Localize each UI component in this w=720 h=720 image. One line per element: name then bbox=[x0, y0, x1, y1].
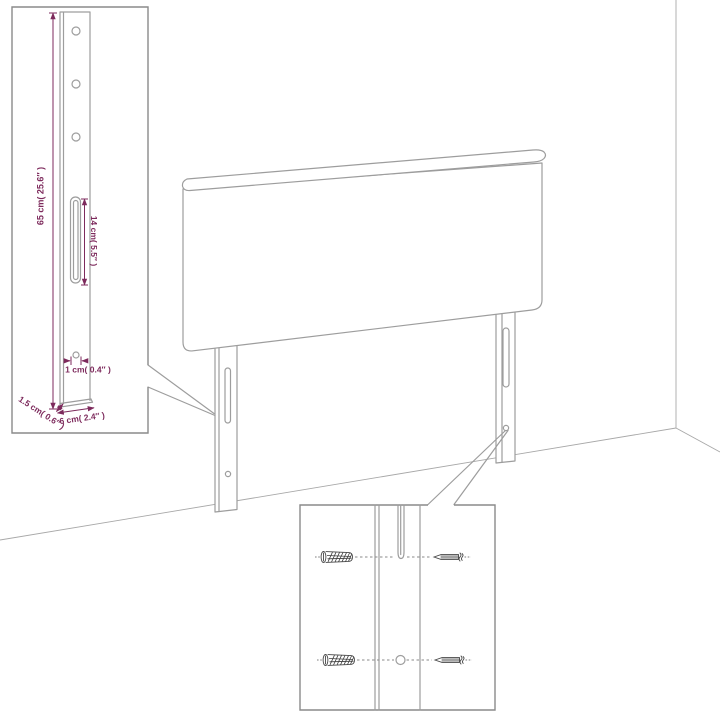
fixing-row-top bbox=[315, 551, 471, 562]
dim-slot-label: 14 cm( 5.5″ ) bbox=[89, 216, 99, 267]
product-dimension-diagram: 65 cm( 25.6″ ) 14 cm( 5.5″ ) 1 cm( 0.4″ … bbox=[0, 0, 720, 720]
headboard-left-leg bbox=[215, 338, 237, 513]
headboard-right-leg bbox=[496, 304, 515, 464]
dim-height-label: 65 cm( 25.6″ ) bbox=[36, 167, 46, 225]
headboard-drawing bbox=[182, 150, 545, 512]
detail-screw-hole bbox=[73, 352, 79, 358]
dim-hole: 1 cm( 0.4″ ) bbox=[65, 357, 111, 375]
floor-line-left bbox=[0, 428, 676, 540]
dim-width: 6 cm( 2.4″ ) bbox=[58, 408, 106, 426]
dim-height: 65 cm( 25.6″ ) bbox=[36, 13, 58, 409]
dim-hole-label: 1 cm( 0.4″ ) bbox=[65, 365, 111, 375]
hardware-detail-inset bbox=[300, 505, 495, 710]
headboard-panel bbox=[183, 163, 542, 351]
callout-lines bbox=[148, 365, 508, 505]
leg-detail-inset: 65 cm( 25.6″ ) 14 cm( 5.5″ ) 1 cm( 0.4″ … bbox=[12, 7, 148, 433]
floor-line-right bbox=[676, 428, 720, 452]
section-screw-hole bbox=[396, 656, 405, 665]
leg-front-view bbox=[60, 12, 93, 407]
leg-section-view bbox=[375, 505, 420, 710]
fixing-row-bottom bbox=[317, 654, 472, 665]
